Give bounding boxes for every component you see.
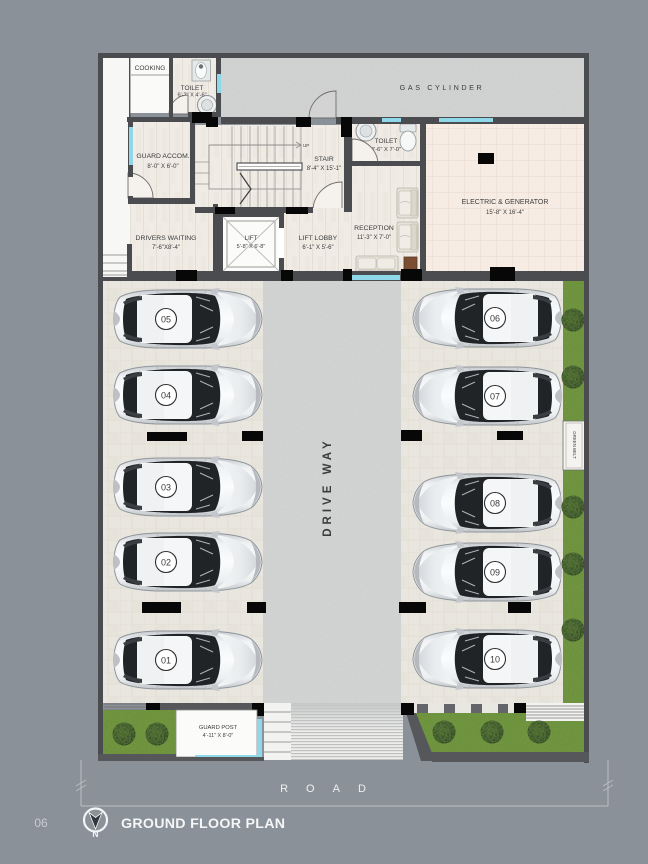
- svg-text:02: 02: [161, 558, 171, 568]
- svg-text:5'-8" X 6'-8": 5'-8" X 6'-8": [237, 244, 266, 250]
- svg-text:15'-8" X 16'-4": 15'-8" X 16'-4": [486, 210, 524, 216]
- svg-text:COOKING: COOKING: [135, 65, 166, 72]
- svg-text:STAIR: STAIR: [314, 156, 334, 163]
- svg-text:4'-11" X 8'-0": 4'-11" X 8'-0": [203, 733, 234, 739]
- svg-text:10: 10: [490, 655, 500, 665]
- svg-text:01: 01: [161, 656, 171, 666]
- svg-text:TOILET: TOILET: [375, 138, 398, 145]
- svg-text:LIFT: LIFT: [245, 235, 258, 242]
- svg-text:09: 09: [490, 568, 500, 578]
- svg-text:GAS CYLINDER: GAS CYLINDER: [400, 83, 485, 92]
- svg-text:RECEPTION: RECEPTION: [354, 225, 394, 232]
- svg-text:DRIVERS WAITING: DRIVERS WAITING: [136, 235, 197, 242]
- svg-text:TOILET: TOILET: [181, 85, 204, 92]
- svg-text:06: 06: [34, 816, 48, 830]
- svg-text:03: 03: [161, 483, 171, 493]
- svg-text:08: 08: [490, 499, 500, 509]
- svg-text:8'-4" X 15'-1": 8'-4" X 15'-1": [307, 166, 342, 172]
- svg-text:7'-6"X8'-4": 7'-6"X8'-4": [152, 245, 180, 251]
- svg-text:04: 04: [161, 391, 171, 401]
- svg-text:4'-6" X 7'-0": 4'-6" X 7'-0": [371, 147, 401, 153]
- svg-text:DRIVE WAY: DRIVE WAY: [322, 437, 334, 536]
- svg-text:06: 06: [490, 314, 500, 324]
- svg-text:8'-0" X 6'-0": 8'-0" X 6'-0": [147, 164, 178, 170]
- svg-text:07: 07: [490, 392, 500, 402]
- svg-text:LIFT LOBBY: LIFT LOBBY: [299, 235, 338, 242]
- svg-text:UP: UP: [303, 143, 309, 148]
- svg-text:ELECTRIC & GENERATOR: ELECTRIC & GENERATOR: [462, 199, 549, 206]
- svg-text:GROUND FLOOR PLAN: GROUND FLOOR PLAN: [121, 816, 285, 832]
- svg-text:11'-3" X 7'-0": 11'-3" X 7'-0": [357, 235, 391, 241]
- svg-text:ROAD: ROAD: [280, 783, 384, 795]
- svg-text:GUARD POST: GUARD POST: [199, 725, 238, 731]
- svg-text:GREEN BELT: GREEN BELT: [572, 431, 577, 459]
- svg-text:N: N: [92, 829, 98, 839]
- svg-text:05: 05: [161, 315, 171, 325]
- svg-text:GUARD ACCOM.: GUARD ACCOM.: [136, 153, 189, 160]
- svg-text:6'-1" X 5'-6": 6'-1" X 5'-6": [302, 245, 333, 251]
